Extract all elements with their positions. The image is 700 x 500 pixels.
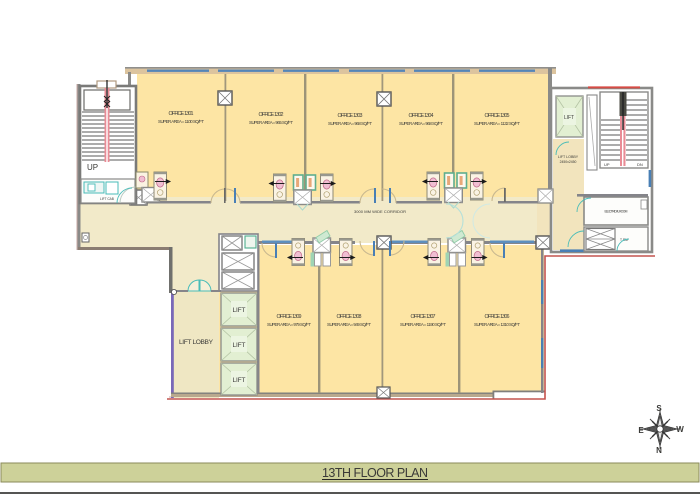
- svg-text:OFFICE 1301: OFFICE 1301: [169, 111, 194, 117]
- svg-text:SUPER AREA = 1132 SQ/FT: SUPER AREA = 1132 SQ/FT: [474, 121, 520, 126]
- svg-text:LIFT LOBBY: LIFT LOBBY: [558, 155, 579, 159]
- svg-text:UP: UP: [87, 163, 98, 172]
- svg-text:SUPER AREA = 1100 SQ/FT: SUPER AREA = 1100 SQ/FT: [158, 119, 204, 124]
- svg-text:13TH FLOOR PLAN: 13TH FLOOR PLAN: [322, 466, 428, 480]
- svg-text:SUPER AREA = 979 SQ/FT: SUPER AREA = 979 SQ/FT: [267, 322, 311, 327]
- svg-text:S: S: [656, 404, 662, 413]
- svg-text:LIFT: LIFT: [233, 307, 246, 314]
- svg-text:OFFICE 1308: OFFICE 1308: [337, 314, 362, 320]
- svg-text:DN: DN: [637, 162, 643, 167]
- svg-text:E: E: [638, 426, 644, 435]
- svg-text:SUPER AREA = 1190 SQ/FT: SUPER AREA = 1190 SQ/FT: [400, 322, 446, 327]
- svg-text:SUPER AREA = 965 SQ/FT: SUPER AREA = 965 SQ/FT: [249, 120, 293, 125]
- svg-text:OFFICE 1303: OFFICE 1303: [338, 113, 363, 119]
- svg-text:LIFT LOBBY: LIFT LOBBY: [179, 339, 214, 346]
- svg-text:LIFT: LIFT: [233, 377, 246, 384]
- svg-text:OFFICE 1304: OFFICE 1304: [409, 113, 434, 119]
- svg-text:3000 MM WIDE CORRIDOR: 3000 MM WIDE CORRIDOR: [354, 209, 406, 214]
- svg-text:OFFICE 1306: OFFICE 1306: [485, 314, 510, 320]
- svg-text:LIFT CAB: LIFT CAB: [100, 197, 114, 201]
- svg-text:LIFT: LIFT: [233, 342, 246, 349]
- svg-text:2450x2450: 2450x2450: [560, 160, 577, 164]
- svg-text:SUPER AREA = 968 SQ/FT: SUPER AREA = 968 SQ/FT: [399, 121, 443, 126]
- svg-text:W: W: [676, 425, 684, 434]
- svg-text:SUPER AREA = 1310 SQ/FT: SUPER AREA = 1310 SQ/FT: [474, 322, 520, 327]
- svg-text:SUPER AREA = 949 SQ/FT: SUPER AREA = 949 SQ/FT: [327, 322, 371, 327]
- svg-text:ELECTRICAL ROOM: ELECTRICAL ROOM: [605, 210, 628, 214]
- svg-text:UP: UP: [604, 162, 610, 167]
- svg-text:OFFICE 1307: OFFICE 1307: [411, 314, 436, 320]
- svg-text:OFFICE 1309: OFFICE 1309: [277, 314, 302, 320]
- svg-text:LIFT: LIFT: [564, 115, 574, 121]
- svg-text:OFFICE 1305: OFFICE 1305: [485, 113, 510, 119]
- svg-text:SUPER AREA = 968 SQ/FT: SUPER AREA = 968 SQ/FT: [328, 121, 372, 126]
- svg-text:N: N: [656, 446, 662, 455]
- svg-text:OFFICE 1302: OFFICE 1302: [259, 112, 284, 118]
